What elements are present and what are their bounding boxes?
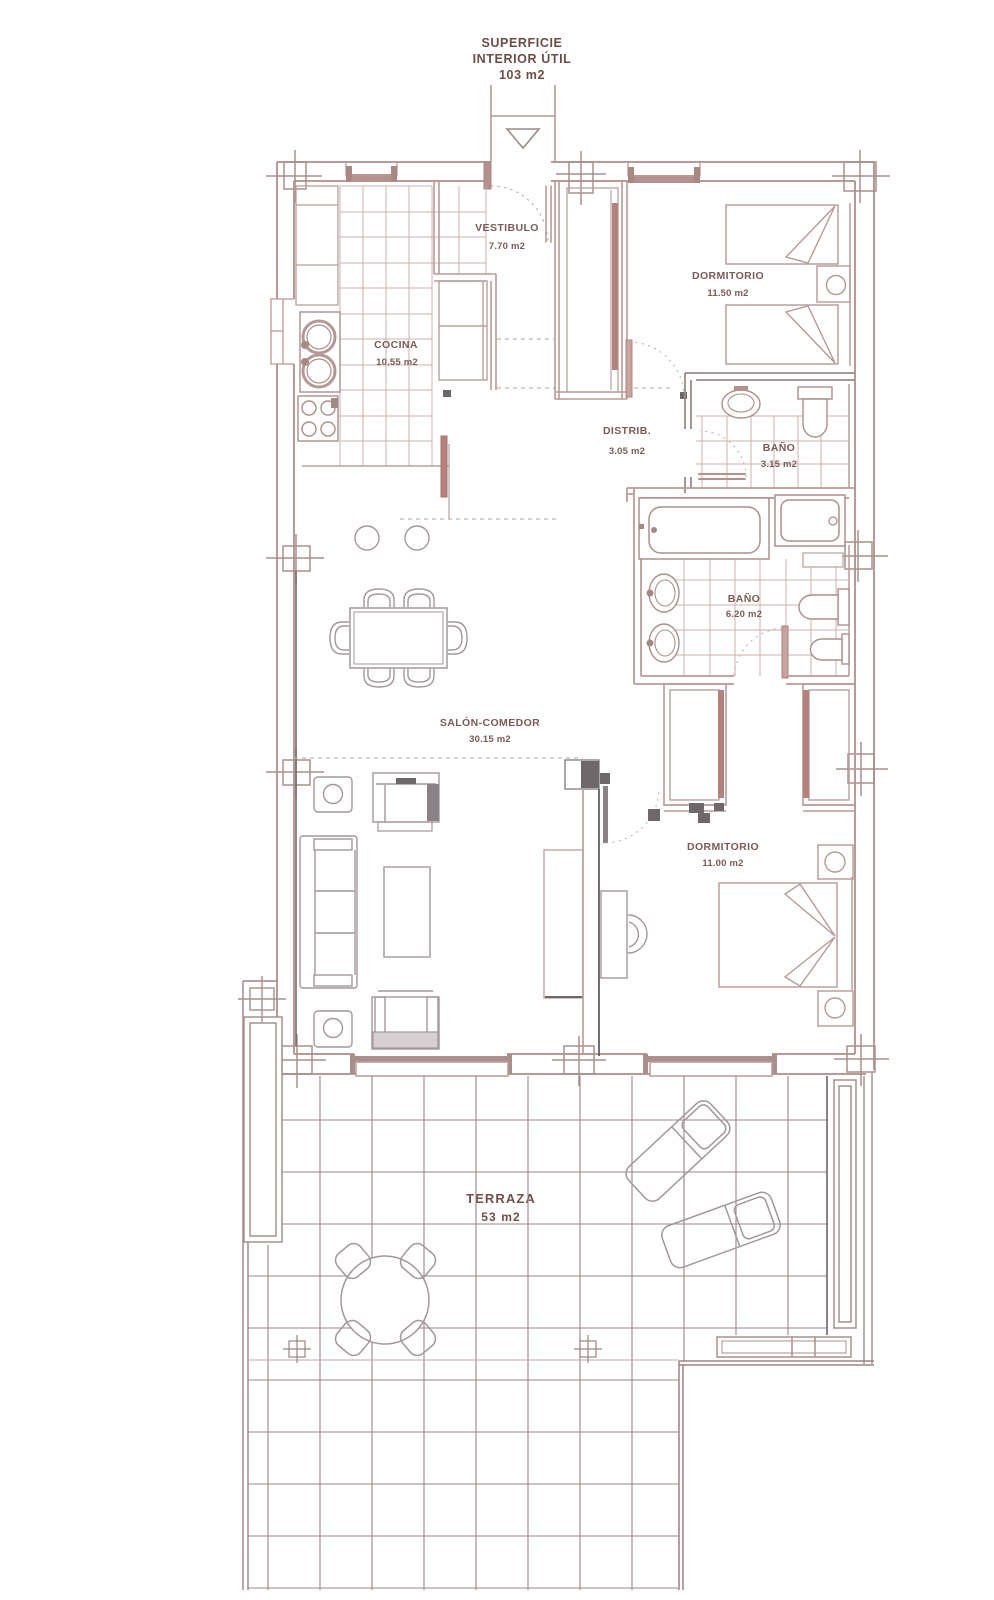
svg-text:VESTIBULO: VESTIBULO (475, 222, 539, 234)
svg-text:30.15 m2: 30.15 m2 (469, 734, 511, 745)
svg-text:DORMITORIO: DORMITORIO (692, 270, 764, 282)
svg-text:DISTRIB.: DISTRIB. (603, 425, 651, 437)
svg-text:3.05 m2: 3.05 m2 (609, 446, 645, 457)
svg-text:10.55 m2: 10.55 m2 (376, 357, 418, 368)
svg-text:COCINA: COCINA (374, 339, 418, 351)
svg-text:BAÑO: BAÑO (763, 441, 796, 454)
svg-text:INTERIOR ÚTIL: INTERIOR ÚTIL (473, 51, 572, 66)
svg-text:11.00 m2: 11.00 m2 (702, 858, 743, 869)
svg-text:TERRAZA: TERRAZA (466, 1191, 536, 1206)
svg-text:DORMITORIO: DORMITORIO (687, 841, 759, 853)
svg-text:SUPERFICIE: SUPERFICIE (481, 36, 562, 50)
svg-text:7.70 m2: 7.70 m2 (489, 241, 525, 252)
svg-text:11.50 m2: 11.50 m2 (707, 288, 748, 299)
svg-text:53 m2: 53 m2 (481, 1210, 521, 1224)
svg-text:6.20 m2: 6.20 m2 (726, 609, 762, 620)
svg-text:BAÑO: BAÑO (728, 592, 761, 605)
svg-text:3.15 m2: 3.15 m2 (761, 459, 797, 470)
svg-text:SALÓN-COMEDOR: SALÓN-COMEDOR (440, 716, 540, 729)
svg-text:103 m2: 103 m2 (499, 68, 545, 82)
